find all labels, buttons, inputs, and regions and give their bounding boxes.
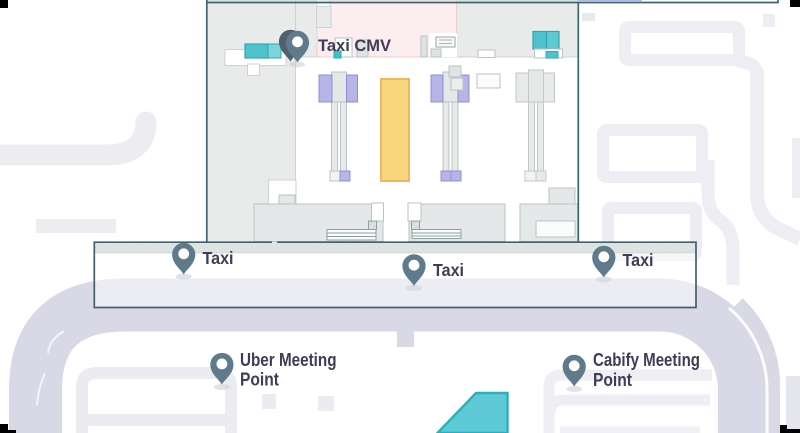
svg-text:Point: Point [593,370,632,390]
svg-text:Taxi: Taxi [203,248,234,268]
svg-text:Point: Point [240,370,279,390]
svg-text:Taxi: Taxi [433,260,464,280]
svg-text:Taxi: Taxi [623,250,654,270]
svg-text:Uber Meeting: Uber Meeting [240,350,337,370]
svg-text:Taxi CMV: Taxi CMV [318,36,392,55]
svg-text:Cabify Meeting: Cabify Meeting [593,350,700,370]
